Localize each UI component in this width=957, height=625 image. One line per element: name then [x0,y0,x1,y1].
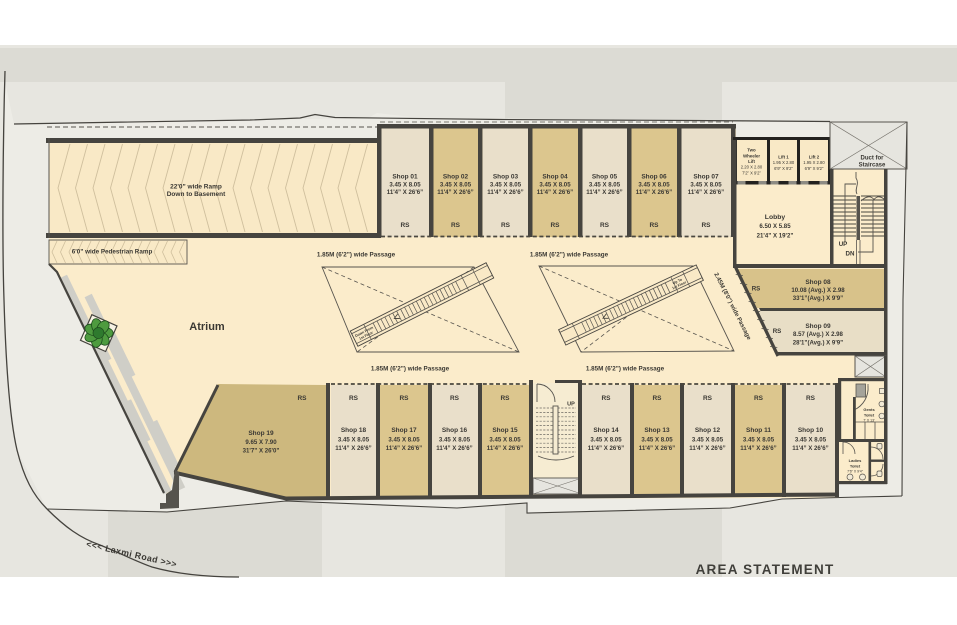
svg-text:11'4” X 26'6”: 11'4” X 26'6” [588,445,624,452]
svg-text:RS: RS [754,395,764,402]
svg-text:3.45 X 8.05: 3.45 X 8.05 [489,437,521,444]
svg-text:6'0” wide Pedestrian Ramp: 6'0” wide Pedestrian Ramp [72,249,153,256]
svg-text:28'1”(Avg.) X 9'9”: 28'1”(Avg.) X 9'9” [793,340,843,347]
svg-text:3.45 X 8.05: 3.45 X 8.05 [692,437,724,444]
svg-text:Two: Two [747,148,756,153]
svg-text:7'6” X 9'4”: 7'6” X 9'4” [847,470,864,474]
svg-text:RS: RS [400,222,410,229]
svg-text:Shop 05: Shop 05 [592,174,618,181]
svg-text:11'4” X 26'6”: 11'4” X 26'6” [636,189,672,196]
svg-text:21'4” X 19'2”: 21'4” X 19'2” [757,233,794,240]
svg-text:RS: RS [806,395,816,402]
svg-text:10.08 (Avg.) X 2.98: 10.08 (Avg.) X 2.98 [791,287,845,294]
svg-text:3.45 X 8.05: 3.45 X 8.05 [388,437,420,444]
svg-text:1.85M (6'2”) wide Passage: 1.85M (6'2”) wide Passage [317,252,396,259]
svg-text:RS: RS [701,222,711,229]
svg-text:1.85M (6'2”) wide Passage: 1.85M (6'2”) wide Passage [530,252,609,259]
svg-text:RS: RS [500,395,510,402]
svg-text:11'4” X 26'6”: 11'4” X 26'6” [639,445,675,452]
svg-text:3.45 X 8.05: 3.45 X 8.05 [690,182,722,189]
svg-text:Wheeler: Wheeler [743,153,760,158]
svg-text:RS: RS [752,286,761,293]
svg-text:11'4” X 26'6”: 11'4” X 26'6” [792,445,828,452]
svg-text:Lift: Lift [748,159,755,164]
svg-text:RS: RS [773,328,782,335]
svg-text:Shop 06: Shop 06 [641,174,667,181]
svg-text:31'7” X 26'0”: 31'7” X 26'0” [243,448,280,455]
svg-text:Shop 09: Shop 09 [805,323,831,330]
svg-text:Shop 15: Shop 15 [492,427,518,434]
svg-text:7' X 13': 7' X 13' [863,419,875,423]
svg-text:Shop 02: Shop 02 [443,174,469,181]
svg-text:22'0” wide Ramp: 22'0” wide Ramp [170,184,222,191]
svg-text:Shop 11: Shop 11 [746,427,771,434]
svg-text:11'4” X 26'6”: 11'4” X 26'6” [586,189,622,196]
svg-text:Shop 12: Shop 12 [695,427,721,434]
svg-text:Ladies: Ladies [849,458,862,463]
svg-text:11'4” X 26'6”: 11'4” X 26'6” [537,189,573,196]
svg-text:Lobby: Lobby [765,214,786,221]
svg-text:1.85M (6'2”) wide Passage: 1.85M (6'2”) wide Passage [371,366,450,373]
svg-text:3.45 X 8.05: 3.45 X 8.05 [795,437,827,444]
svg-text:Toilet: Toilet [850,464,861,469]
svg-text:3.45 X 8.05: 3.45 X 8.05 [589,182,621,189]
svg-text:Shop 01: Shop 01 [392,174,418,181]
svg-text:DN: DN [846,251,855,258]
svg-text:AREA STATEMENT: AREA STATEMENT [696,562,835,577]
svg-text:Shop 16: Shop 16 [442,427,468,434]
svg-text:3.45 X 8.05: 3.45 X 8.05 [389,182,421,189]
svg-text:Shop 07: Shop 07 [693,174,719,181]
svg-text:RS: RS [399,395,409,402]
svg-text:3.45 X 8.05: 3.45 X 8.05 [338,437,370,444]
svg-text:11'4” X 26'6”: 11'4” X 26'6” [740,445,776,452]
svg-text:3.45 X 8.05: 3.45 X 8.05 [638,182,670,189]
svg-text:RS: RS [451,222,461,229]
svg-text:Shop 03: Shop 03 [493,174,519,181]
svg-text:RS: RS [649,222,659,229]
svg-text:Staircase: Staircase [859,163,886,169]
svg-text:1.95 X 2.80: 1.95 X 2.80 [773,160,795,165]
svg-text:Shop 04: Shop 04 [542,174,568,181]
svg-text:9.65 X 7.90: 9.65 X 7.90 [245,439,277,446]
svg-text:3.45 X 8.05: 3.45 X 8.05 [743,437,775,444]
svg-text:RS: RS [703,395,713,402]
svg-text:Shop 08: Shop 08 [805,279,831,286]
svg-text:UP: UP [567,402,575,408]
svg-text:Gents: Gents [863,407,875,412]
svg-text:6.50 X 5.85: 6.50 X 5.85 [759,223,791,230]
svg-text:Shop 14: Shop 14 [593,427,619,434]
svg-text:RS: RS [550,222,560,229]
svg-text:11'4” X 26'6”: 11'4” X 26'6” [688,189,724,196]
svg-text:Lift 2: Lift 2 [809,154,820,159]
svg-text:RS: RS [297,395,307,402]
svg-text:RS: RS [601,395,611,402]
svg-text:6'9” X 9'2”: 6'9” X 9'2” [774,166,793,171]
svg-text:RS: RS [450,395,460,402]
svg-text:RS: RS [600,222,610,229]
svg-text:Down to Basement: Down to Basement [167,191,226,198]
svg-text:1.95 X 2.80: 1.95 X 2.80 [803,160,825,165]
svg-text:33'1”(Avg.) X 9'9”: 33'1”(Avg.) X 9'9” [793,295,843,302]
svg-text:11'4” X 26'6”: 11'4” X 26'6” [437,189,473,196]
svg-text:Lift 1: Lift 1 [778,154,789,159]
svg-text:11'4” X 26'6”: 11'4” X 26'6” [386,445,422,452]
svg-text:Shop 10: Shop 10 [798,427,824,434]
svg-text:7'2” X 9'2”: 7'2” X 9'2” [742,170,761,175]
svg-text:RS: RS [349,395,359,402]
svg-text:Shop 18: Shop 18 [341,427,367,434]
svg-text:3.45 X 8.05: 3.45 X 8.05 [590,437,622,444]
svg-text:3.45 X 8.05: 3.45 X 8.05 [440,182,472,189]
svg-text:3.45 X 8.05: 3.45 X 8.05 [641,437,673,444]
svg-text:Atrium: Atrium [189,321,225,333]
svg-text:11'4” X 26'6”: 11'4” X 26'6” [335,445,371,452]
svg-text:6'9” X 9'2”: 6'9” X 9'2” [805,166,824,171]
svg-text:3.45 X 8.05: 3.45 X 8.05 [439,437,471,444]
svg-text:11'4” X 26'6”: 11'4” X 26'6” [387,189,423,196]
svg-text:RS: RS [652,395,662,402]
svg-text:11'4” X 26'6”: 11'4” X 26'6” [487,445,523,452]
svg-text:8.57 (Avg.) X 2.98: 8.57 (Avg.) X 2.98 [793,331,844,338]
svg-text:UP: UP [839,241,848,248]
svg-text:2.20 X 2.80: 2.20 X 2.80 [741,165,763,170]
svg-text:Toilet: Toilet [864,413,875,418]
svg-text:Shop 17: Shop 17 [391,427,417,434]
svg-text:11'4” X 26'6”: 11'4” X 26'6” [689,445,725,452]
svg-text:1.85M (6'2”) wide Passage: 1.85M (6'2”) wide Passage [586,366,665,373]
svg-text:Shop 19: Shop 19 [248,430,274,437]
svg-text:Duct for: Duct for [861,156,885,162]
svg-text:11'4” X 26'6”: 11'4” X 26'6” [436,445,472,452]
svg-text:11'4” X 26'6”: 11'4” X 26'6” [487,189,523,196]
svg-text:RS: RS [501,222,511,229]
svg-text:3.45 X 8.05: 3.45 X 8.05 [490,182,522,189]
svg-text:3.45 X 8.05: 3.45 X 8.05 [539,182,571,189]
svg-text:Shop 13: Shop 13 [644,427,670,434]
